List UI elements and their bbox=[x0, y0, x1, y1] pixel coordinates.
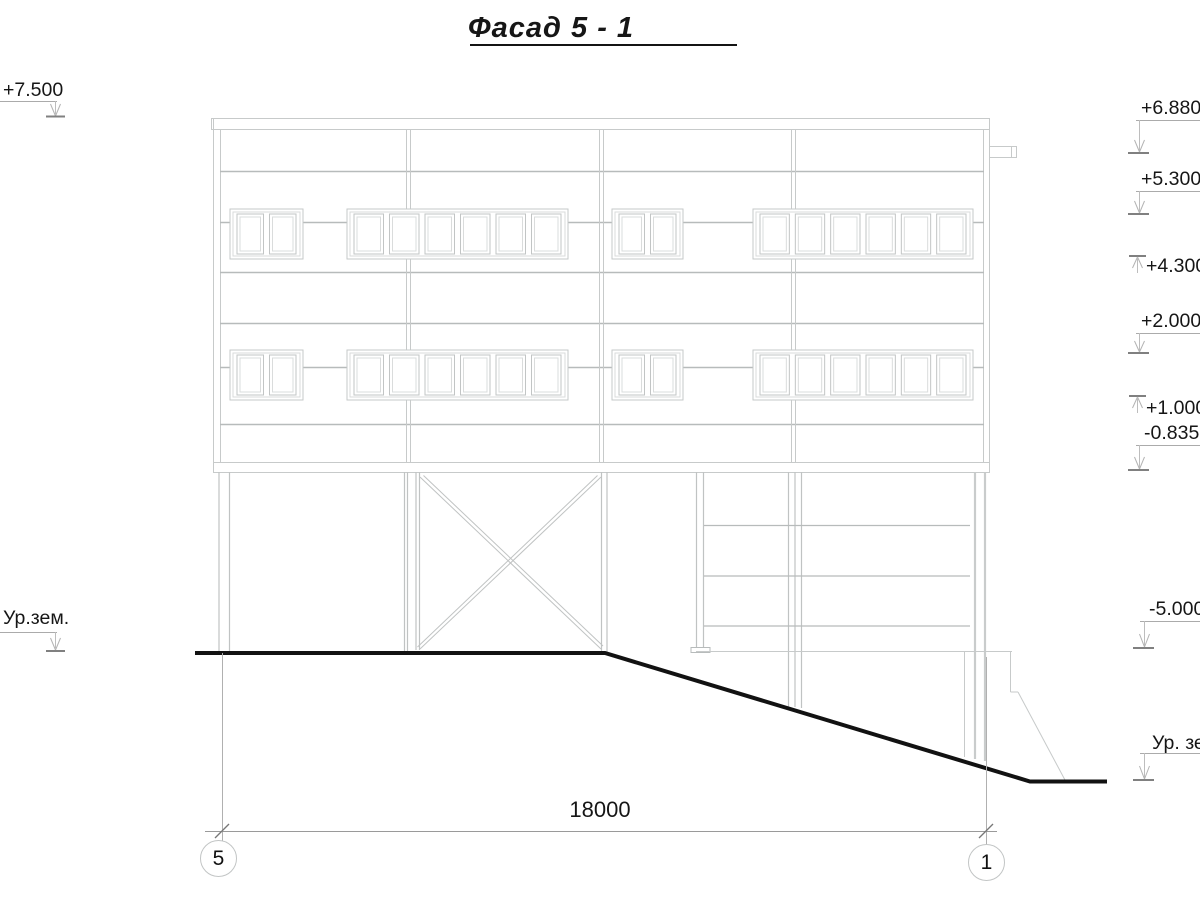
window-frame bbox=[535, 217, 559, 251]
window-frame bbox=[425, 355, 455, 395]
window-frame bbox=[654, 358, 674, 392]
window-frame bbox=[461, 355, 491, 395]
window-frame bbox=[240, 217, 261, 251]
window-frame bbox=[237, 355, 264, 395]
elevation-label-6880: +6.880 bbox=[1141, 98, 1200, 118]
window-frame bbox=[428, 358, 452, 392]
windows bbox=[230, 209, 973, 400]
window-frame bbox=[866, 355, 895, 395]
axis-bubble-1: 1 bbox=[968, 844, 1005, 881]
level-mark-icon bbox=[1128, 445, 1200, 470]
dimension-line bbox=[205, 824, 997, 838]
window-frame bbox=[393, 358, 417, 392]
x-bracing bbox=[418, 476, 604, 650]
window-frame bbox=[270, 214, 297, 254]
window-frame bbox=[798, 358, 821, 392]
elevation-label-5000-neg: -5.000 bbox=[1149, 599, 1200, 619]
window-frame bbox=[834, 358, 857, 392]
dimension-text: 18000 bbox=[540, 800, 660, 820]
window-frame bbox=[233, 353, 300, 397]
window-frame bbox=[461, 214, 491, 254]
level-mark-icon bbox=[0, 101, 65, 117]
ground-line bbox=[195, 653, 1107, 782]
foundation bbox=[965, 651, 1066, 780]
level-mark-icon bbox=[1129, 256, 1146, 273]
window-frame bbox=[904, 217, 927, 251]
window-frame bbox=[866, 214, 895, 254]
window-frame bbox=[464, 358, 488, 392]
window-frame bbox=[273, 358, 294, 392]
window-frame bbox=[390, 355, 420, 395]
right-column bbox=[975, 473, 985, 761]
window-frame bbox=[496, 214, 526, 254]
window-frame bbox=[869, 358, 892, 392]
window-frame bbox=[354, 355, 384, 395]
window-frame bbox=[615, 353, 680, 397]
window-frame bbox=[619, 214, 645, 254]
stair-structure bbox=[691, 472, 1012, 653]
window-frame bbox=[756, 212, 970, 256]
ground-level-label-left: Ур.зем. bbox=[3, 608, 69, 628]
window-frame bbox=[273, 217, 294, 251]
window-frame bbox=[795, 214, 824, 254]
window-frame bbox=[532, 214, 562, 254]
window-frame bbox=[760, 355, 789, 395]
window-frame bbox=[763, 358, 786, 392]
window-frame bbox=[425, 214, 455, 254]
level-mark-icon bbox=[1128, 120, 1200, 153]
window-frame bbox=[901, 355, 930, 395]
window-frame bbox=[940, 358, 963, 392]
window-frame bbox=[831, 214, 860, 254]
window-frame bbox=[795, 355, 824, 395]
level-mark-icon bbox=[1129, 396, 1146, 413]
level-mark-icon bbox=[1133, 753, 1200, 780]
level-mark-icon bbox=[0, 632, 65, 651]
facade-panel-joints bbox=[407, 130, 796, 462]
axis-bubble-1-label: 1 bbox=[981, 851, 993, 875]
title-underline bbox=[470, 44, 737, 46]
drawing-title: Фасад 5 - 1 bbox=[468, 12, 634, 44]
window-frame bbox=[350, 353, 565, 397]
window-frame bbox=[937, 355, 966, 395]
elevation-label-2000: +2.000 bbox=[1141, 311, 1200, 331]
elevation-label-1000: +1.000 bbox=[1146, 398, 1200, 418]
window-frame bbox=[651, 214, 677, 254]
window-frame bbox=[756, 353, 970, 397]
window-frame bbox=[499, 358, 523, 392]
window-frame bbox=[940, 217, 963, 251]
window-frame bbox=[622, 217, 642, 251]
level-mark-icon bbox=[1128, 191, 1200, 214]
roof-scupper bbox=[990, 147, 1017, 158]
window-frame bbox=[535, 358, 559, 392]
window-frame bbox=[763, 217, 786, 251]
window-frame bbox=[622, 358, 642, 392]
axis-bubble-5: 5 bbox=[200, 840, 237, 877]
window-frame bbox=[350, 212, 565, 256]
window-frame bbox=[869, 217, 892, 251]
window-frame bbox=[798, 217, 821, 251]
drawing-canvas bbox=[0, 0, 1200, 900]
window-frame bbox=[651, 355, 677, 395]
window-frame bbox=[357, 358, 381, 392]
window-frame bbox=[937, 214, 966, 254]
window-frame bbox=[619, 355, 645, 395]
window-frame bbox=[390, 214, 420, 254]
elevation-label-4300: +4.300 bbox=[1146, 256, 1200, 276]
window-frame bbox=[496, 355, 526, 395]
window-frame bbox=[357, 217, 381, 251]
window-frame bbox=[532, 355, 562, 395]
elevation-label-7500: +7.500 bbox=[3, 80, 63, 100]
window-frame bbox=[904, 358, 927, 392]
elevation-label-5300: +5.300 bbox=[1141, 169, 1200, 189]
window-frame bbox=[428, 217, 452, 251]
window-frame bbox=[499, 217, 523, 251]
ground-level-label-right: Ур. зе bbox=[1152, 733, 1200, 753]
facade-drawing: Фасад 5 - 1 +7.500 Ур.зем. +6.880 +5.300… bbox=[0, 0, 1200, 900]
window-frame bbox=[393, 217, 417, 251]
window-frame bbox=[654, 217, 674, 251]
window-frame bbox=[901, 214, 930, 254]
window-frame bbox=[233, 212, 300, 256]
window-frame bbox=[760, 214, 789, 254]
level-mark-icon bbox=[1128, 333, 1200, 353]
elevation-label-0835: -0.835 bbox=[1144, 423, 1199, 443]
window-frame bbox=[831, 355, 860, 395]
window-frame bbox=[237, 214, 264, 254]
window-frame bbox=[270, 355, 297, 395]
window-frame bbox=[834, 217, 857, 251]
level-mark-icon bbox=[1133, 621, 1200, 648]
window-frame bbox=[240, 358, 261, 392]
window-frame bbox=[354, 214, 384, 254]
window-frame bbox=[615, 212, 680, 256]
window-frame bbox=[464, 217, 488, 251]
pilotis-columns bbox=[219, 472, 802, 708]
axis-bubble-5-label: 5 bbox=[213, 847, 225, 871]
